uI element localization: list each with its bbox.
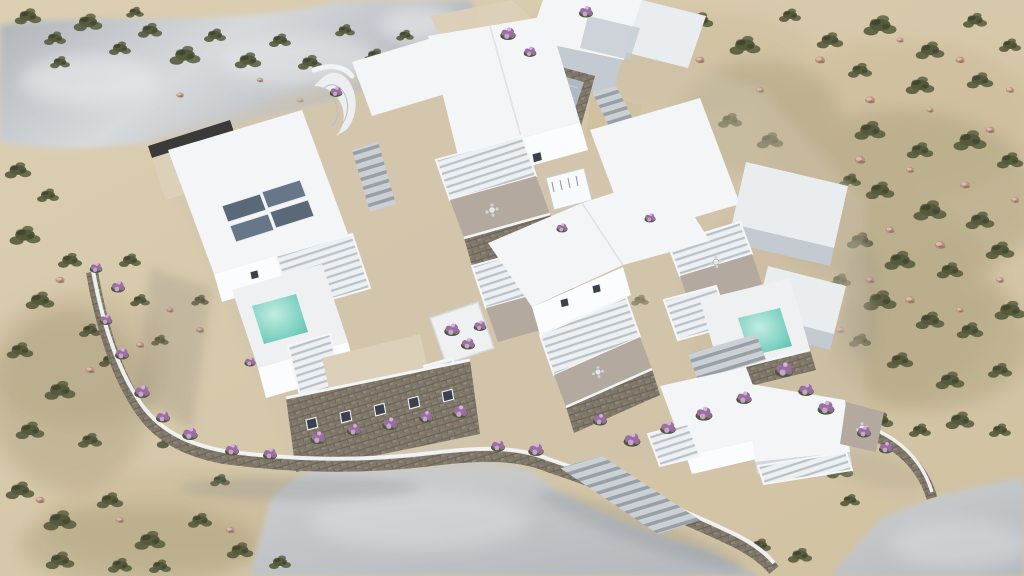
rock (56, 277, 65, 283)
rock (116, 517, 124, 523)
window (306, 417, 318, 430)
window (408, 396, 420, 409)
rock (960, 181, 970, 188)
rock (956, 57, 965, 63)
rock (896, 37, 903, 42)
rock (906, 167, 914, 173)
window (442, 389, 454, 402)
rock (935, 241, 946, 249)
rock (815, 56, 825, 63)
rock (886, 227, 895, 233)
aerial-render (0, 0, 1024, 576)
rock (865, 96, 875, 103)
rock (226, 527, 235, 533)
window (374, 403, 386, 416)
rock (696, 57, 705, 63)
window (532, 152, 542, 163)
rock (86, 367, 95, 373)
rock (257, 78, 263, 82)
rock (926, 107, 933, 112)
rock (1006, 87, 1014, 93)
rock (176, 92, 183, 97)
rock (986, 127, 995, 133)
window (592, 284, 601, 294)
window (340, 410, 352, 423)
window (560, 298, 569, 308)
rock (855, 156, 866, 164)
rock (36, 497, 45, 503)
rock (1011, 197, 1019, 203)
rock (996, 277, 1004, 283)
window (250, 270, 259, 280)
rock (956, 307, 963, 312)
render-viewport (0, 0, 1024, 576)
rock (905, 296, 915, 303)
